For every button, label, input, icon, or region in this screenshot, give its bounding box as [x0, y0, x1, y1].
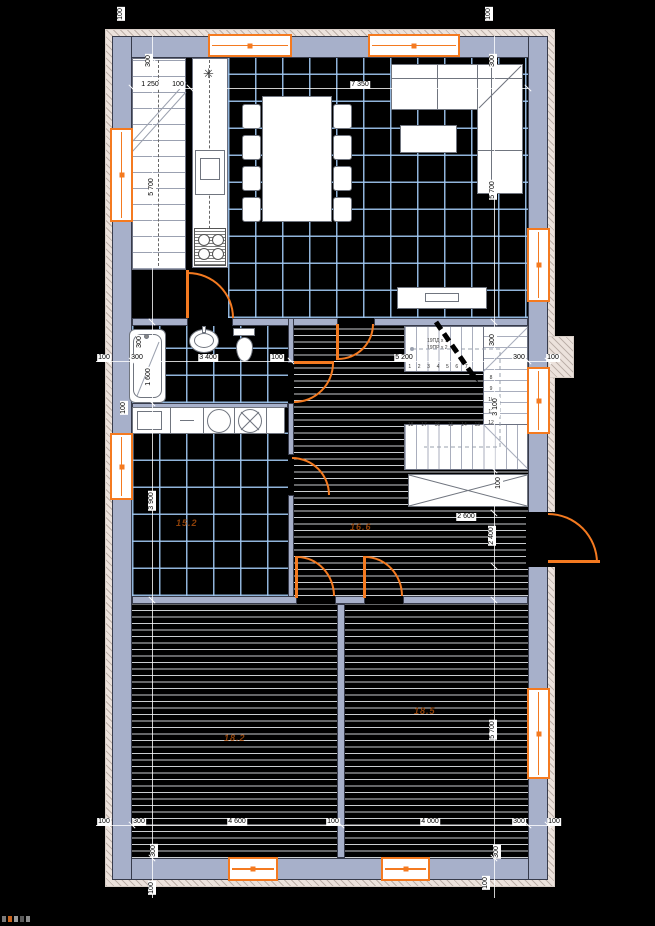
dimension-label: 5 700 — [489, 720, 497, 740]
partition — [132, 596, 297, 604]
toilet-tank — [233, 328, 255, 336]
dimension-label: 5 700 — [148, 177, 156, 197]
stair-step-number: 6 — [452, 364, 461, 372]
staircase-left — [132, 58, 186, 270]
counter-divider — [266, 407, 267, 434]
dimension-label: 100 — [547, 818, 561, 826]
wardrobe — [408, 474, 528, 507]
stair-step-number: 4 — [433, 364, 442, 372]
oven-door — [200, 158, 220, 180]
partition — [132, 318, 188, 326]
dimension-label: 300 — [136, 335, 144, 349]
stair-step-number: 15 — [444, 422, 457, 430]
dimension-label: 100 — [120, 401, 128, 415]
dimension-label: 100 — [148, 881, 156, 895]
partition — [232, 318, 338, 326]
dimension-label: 100 — [482, 876, 490, 890]
bathtub-faucet — [144, 334, 149, 339]
dimension-label: 100 — [171, 81, 185, 89]
dimension-label: 300 — [145, 54, 153, 68]
dimension-label: 4 000 — [420, 818, 440, 826]
window — [368, 34, 460, 57]
room-area-label: 15.2 — [176, 518, 198, 528]
floor-plan: ✳ 1234567 89101112 181716151413 19ПД — [0, 0, 655, 926]
washbasin-inner — [194, 333, 214, 348]
chair — [333, 166, 352, 191]
window — [381, 857, 430, 881]
window — [527, 228, 550, 302]
chair — [242, 104, 261, 129]
sofa-cushion-line — [437, 64, 438, 110]
hob-burner — [212, 234, 224, 246]
chair — [242, 166, 261, 191]
dimension-label: 100 — [97, 354, 111, 362]
window — [110, 433, 133, 500]
dimension-label: 300 — [489, 333, 497, 347]
room-area-label: 18.2 — [224, 733, 246, 743]
hob-burner — [212, 248, 224, 260]
window — [228, 857, 278, 881]
stair-step-number: 1 — [405, 364, 414, 372]
dimension-label: 3 100 — [492, 397, 500, 417]
stair-step-number: 5 — [443, 364, 452, 372]
dimension-label: 1 250 — [140, 81, 160, 89]
dimension-label: 100 — [326, 818, 340, 826]
dimension-label: 5 700 — [489, 180, 497, 200]
sofa-back-line — [491, 64, 492, 194]
dimension-label: 100 — [546, 354, 560, 362]
dimension-label: 100 — [270, 354, 284, 362]
stair-note-tread: 19ПР x 2 — [427, 345, 448, 351]
counter-dash — [180, 420, 194, 421]
dimension-label: 300 — [512, 354, 526, 362]
dimension-label: 300 — [489, 54, 497, 68]
hob-burner — [198, 248, 210, 260]
sideboard-handle — [425, 293, 459, 302]
dimension-label: 300 — [512, 818, 526, 826]
stair-numbers-bottom: 181716151413 — [404, 422, 484, 430]
window — [208, 34, 292, 57]
stair-step-number: 2 — [414, 364, 423, 372]
stair-step-number: 16 — [431, 422, 444, 430]
dimension-label: 4 600 — [227, 818, 247, 826]
wall-top — [112, 36, 548, 58]
chair — [242, 135, 261, 160]
window — [527, 367, 550, 434]
washing-machine — [207, 409, 231, 433]
stair-step-number: 17 — [417, 422, 430, 430]
dimension-label: 2 400 — [488, 526, 496, 546]
dimension-label: 1 600 — [145, 367, 153, 387]
dimension-label: 300 — [132, 818, 146, 826]
dimension-label: 100 — [97, 818, 111, 826]
dryer — [238, 409, 262, 433]
stair-flight-bottom — [404, 424, 528, 470]
partition — [288, 495, 294, 600]
dimension-label: 300 — [150, 844, 158, 858]
dimension-label: 3 400 — [198, 354, 218, 362]
partition — [288, 318, 294, 363]
dining-table — [262, 96, 332, 222]
partition — [288, 403, 294, 455]
dimension-label: 100 — [495, 476, 503, 490]
watermark — [2, 916, 30, 922]
stair-numbers-top: 1234567 — [405, 364, 471, 372]
coffee-table — [400, 125, 457, 153]
hob-burner — [198, 234, 210, 246]
counter-divider — [170, 407, 171, 434]
counter-divider — [234, 407, 235, 434]
washbasin-tap — [202, 326, 206, 333]
chair — [333, 135, 352, 160]
dimension-line — [494, 36, 495, 898]
kitchen-sink-hob — [194, 228, 226, 266]
chair — [333, 104, 352, 129]
dimension-label: 5 200 — [394, 354, 414, 362]
stair-step-number: 7 — [462, 364, 471, 372]
partition — [335, 596, 365, 604]
stair-step-number: 13 — [471, 422, 484, 430]
window — [527, 688, 550, 779]
dimension-label: 100 — [485, 7, 493, 21]
dimension-label: 300 — [493, 845, 501, 859]
dimension-label: 2 600 — [456, 513, 476, 521]
laundry-sink — [137, 411, 162, 430]
dimension-label: 100 — [117, 7, 125, 21]
dimension-line — [152, 36, 153, 898]
counter-divider — [203, 407, 204, 434]
room-area-label: 16.6 — [350, 522, 372, 532]
stair-centerline — [158, 60, 159, 266]
dimension-label: 7 350 — [350, 81, 370, 89]
partition — [403, 596, 528, 604]
stair-step-number: 18 — [404, 422, 417, 430]
stair-step-number: 14 — [457, 422, 470, 430]
chair — [242, 197, 261, 222]
sofa-back-line — [391, 78, 523, 79]
dimension-label: 300 — [130, 354, 144, 362]
stair-note-rise: 19ПД x 1 — [427, 338, 448, 344]
sofa-vertical — [477, 64, 523, 194]
dimension-label: 3 900 — [148, 491, 156, 511]
entrance-door-arc — [548, 513, 598, 563]
sofa-cushion-line — [477, 150, 523, 151]
chair — [333, 197, 352, 222]
extractor-icon: ✳ — [203, 66, 214, 82]
room-area-label: 18.5 — [414, 706, 436, 716]
stair-step-number: 3 — [424, 364, 433, 372]
partition — [374, 318, 528, 326]
window — [110, 128, 133, 222]
